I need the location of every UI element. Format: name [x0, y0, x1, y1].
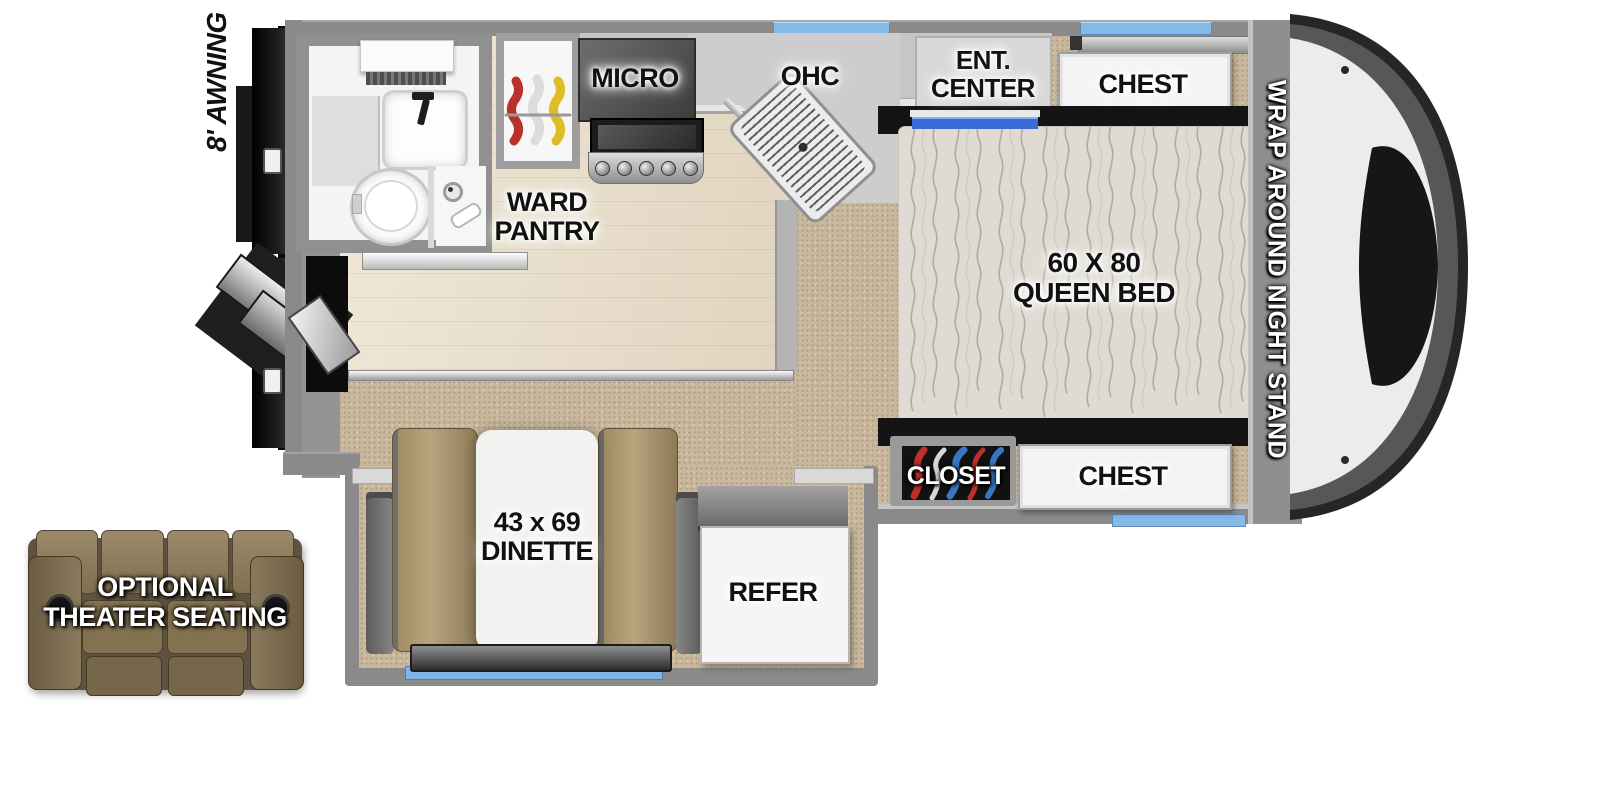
door-latch-lower: [263, 368, 282, 394]
chest-bottom-label: CHEST: [1053, 462, 1193, 491]
shower-drain-dot: [448, 187, 453, 192]
range-knob-icon: [639, 161, 654, 176]
footrest-cushion: [86, 656, 162, 696]
range-knob-panel: [588, 152, 704, 184]
chest-top-label-text: CHEST: [1098, 69, 1187, 99]
dinette-step-rail: [410, 644, 672, 672]
front-nose-cap: [1290, 8, 1490, 528]
closet-label: CLOSET: [896, 462, 1016, 490]
dinette-label-line1: 43 x 69: [466, 508, 608, 537]
shower-divider: [428, 166, 434, 248]
range-knob-icon: [617, 161, 632, 176]
awning-label: 8' AWNING: [202, 2, 232, 162]
bed-label-line2: QUEEN BED: [984, 278, 1204, 308]
closet-label-text: CLOSET: [907, 462, 1005, 490]
range-knob-icon: [595, 161, 610, 176]
nightstand-label-text: WRAP AROUND NIGHT STAND: [1262, 80, 1291, 459]
ward-pantry-label: WARD PANTRY: [487, 188, 607, 246]
oven-glass: [598, 125, 696, 149]
ward-label-line1: WARD: [487, 188, 607, 217]
theater-label-line2: THEATER SEATING: [15, 602, 315, 632]
range-knob-icon: [683, 161, 698, 176]
dinette-bench-right: [598, 428, 678, 652]
tv-shelf-trim: [910, 110, 1040, 117]
theater-label-line1: OPTIONAL: [15, 572, 315, 602]
theater-seating-label: OPTIONAL THEATER SEATING: [15, 572, 315, 632]
floorplan-canvas: 8' AWNING WARD PANTRY: [0, 0, 1600, 802]
window-bottom-right: [1112, 514, 1246, 527]
toilet-hinge-icon: [352, 194, 362, 214]
wardrobe-hangers-icon: [504, 45, 572, 163]
refer-lid: [698, 486, 848, 531]
door-latch-upper: [263, 148, 282, 174]
window-top-2: [1080, 22, 1212, 35]
ent-label-line1: ENT.: [913, 46, 1053, 74]
refer-label: REFER: [700, 578, 846, 607]
ohc-label-text: OHC: [781, 61, 840, 91]
dinette-label: 43 x 69 DINETTE: [466, 508, 608, 566]
shower-drain-icon: [443, 182, 463, 202]
oven-window: [590, 118, 704, 156]
bathroom-ledge: [362, 252, 528, 270]
slideout-trim-right: [794, 468, 874, 484]
range-knob-icon: [661, 161, 676, 176]
clearance-light-bottom: [1341, 456, 1349, 464]
footrest-cushion: [168, 656, 244, 696]
floor-threshold-strip: [348, 370, 794, 381]
micro-label-text: MICRO: [591, 63, 679, 93]
chest-bottom-label-text: CHEST: [1078, 461, 1167, 491]
cabinet-end-panel: [775, 200, 797, 372]
chest-top-label: CHEST: [1073, 70, 1213, 99]
refer-label-text: REFER: [728, 577, 817, 607]
micro-label: MICRO: [575, 64, 695, 93]
tv-accent-strip: [912, 117, 1038, 129]
clearance-light-top: [1341, 66, 1349, 74]
chest-rail-cap: [1070, 36, 1082, 50]
toilet-bowl-icon: [364, 180, 418, 232]
awning-label-text: 8' AWNING: [201, 12, 232, 152]
queen-bed-label: 60 X 80 QUEEN BED: [984, 248, 1204, 308]
bathroom-shelf: [360, 40, 454, 72]
bed-label-line1: 60 X 80: [984, 248, 1204, 278]
ent-label-line2: CENTER: [913, 74, 1053, 102]
dinette-armrest-left: [366, 498, 394, 654]
dinette-label-line2: DINETTE: [466, 537, 608, 566]
theater-footrests: [86, 656, 244, 696]
ward-label-line2: PANTRY: [487, 217, 607, 246]
bathroom-vent: [366, 72, 446, 85]
ent-center-label: ENT. CENTER: [913, 46, 1053, 102]
ohc-label: OHC: [760, 62, 860, 91]
